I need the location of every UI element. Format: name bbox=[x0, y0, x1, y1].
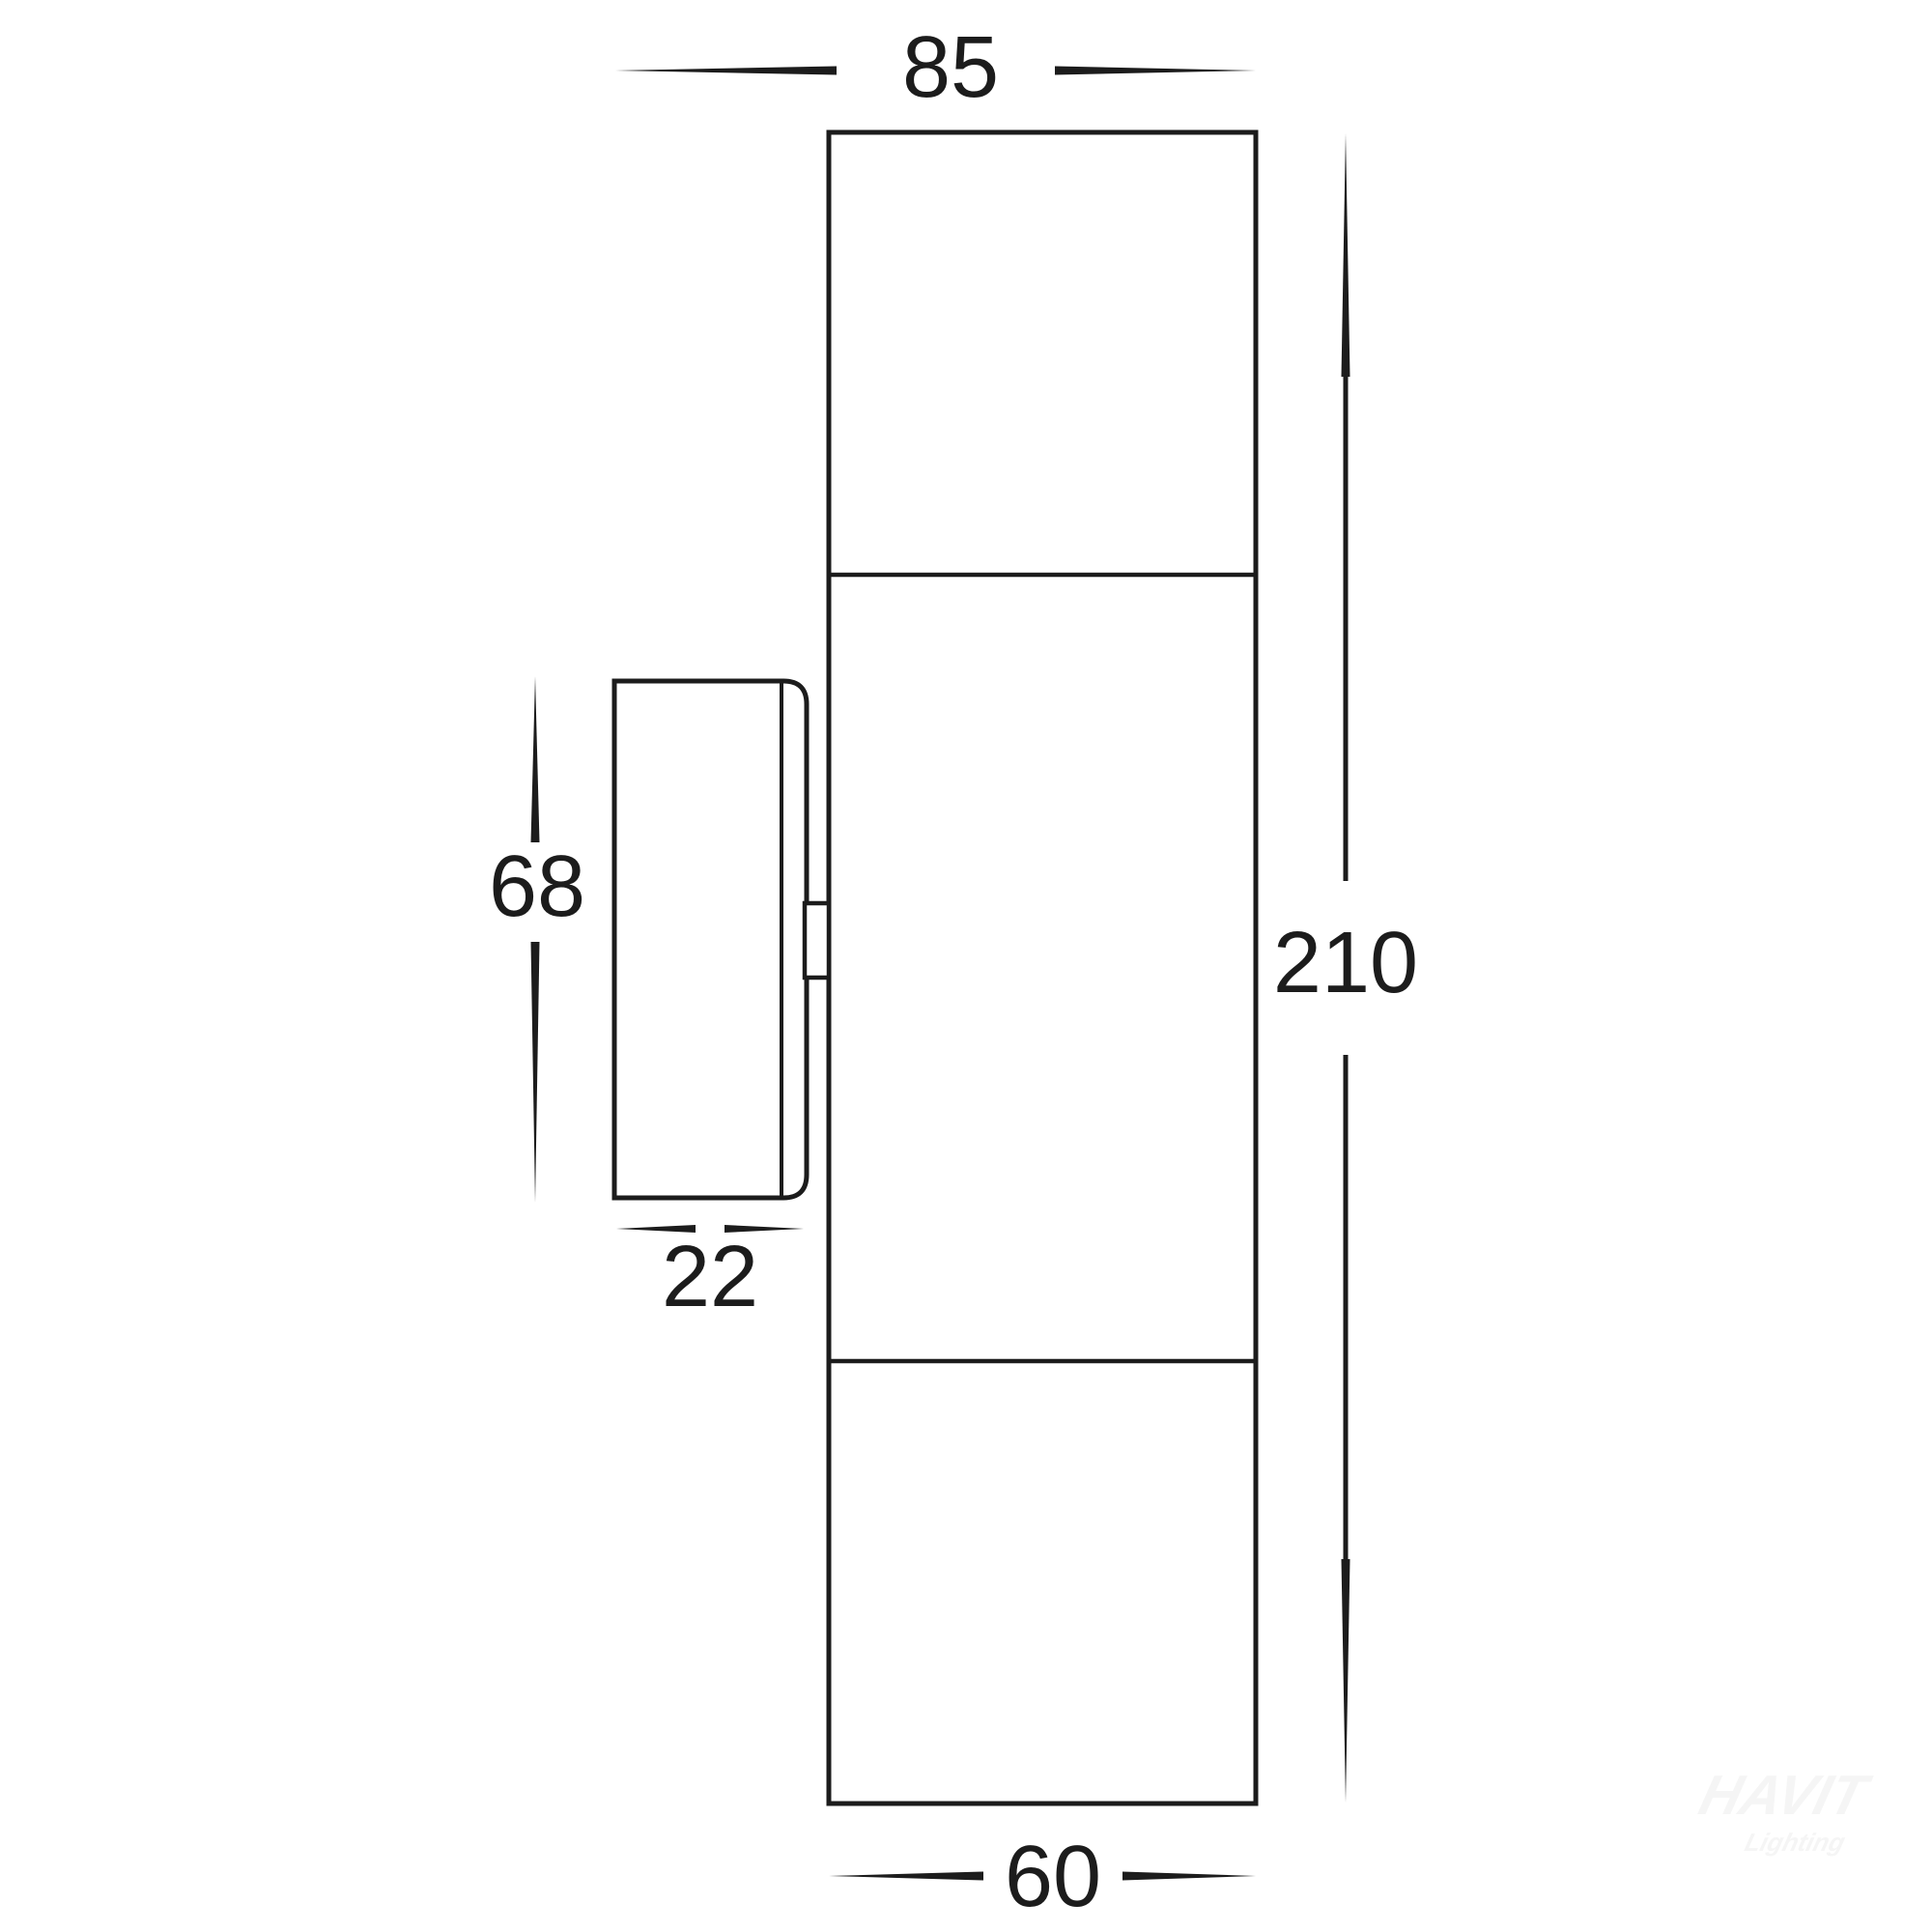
watermark-sub-text: Lighting bbox=[1742, 1828, 1848, 1857]
dim-210-top-shaft bbox=[1344, 372, 1349, 881]
mount-plate-outline bbox=[614, 681, 807, 1198]
dim-label-68: 68 bbox=[489, 838, 585, 935]
dim-210-bottom-arrow bbox=[1342, 1559, 1350, 1803]
watermark-brand-text: HAVIT bbox=[1693, 1765, 1878, 1827]
dim-85-right-arrow bbox=[1055, 67, 1256, 75]
dim-60-left-arrow bbox=[829, 1872, 983, 1881]
dimension-diagram: 85 210 68 22 60 HAVIT Lighting bbox=[0, 0, 1932, 1932]
dim-60-right-arrow bbox=[1122, 1872, 1256, 1881]
dimension-labels: 85 210 68 22 60 bbox=[489, 19, 1418, 1925]
brand-watermark: HAVIT Lighting bbox=[1693, 1765, 1878, 1857]
dimension-arrows bbox=[531, 67, 1350, 1881]
dim-label-22: 22 bbox=[662, 1229, 758, 1325]
dim-210-bottom-shaft bbox=[1344, 1055, 1349, 1564]
dim-label-210: 210 bbox=[1273, 915, 1418, 1011]
dim-210-top-arrow bbox=[1342, 133, 1350, 377]
dim-85-left-arrow bbox=[615, 67, 837, 75]
body-outline bbox=[829, 132, 1256, 1804]
dim-label-85: 85 bbox=[902, 19, 999, 116]
fixture-outlines bbox=[614, 132, 1256, 1804]
dim-68-bottom-arrow bbox=[531, 942, 540, 1203]
dim-68-top-arrow bbox=[531, 676, 540, 842]
connector-boss bbox=[805, 903, 829, 978]
dim-label-60: 60 bbox=[1005, 1829, 1101, 1925]
